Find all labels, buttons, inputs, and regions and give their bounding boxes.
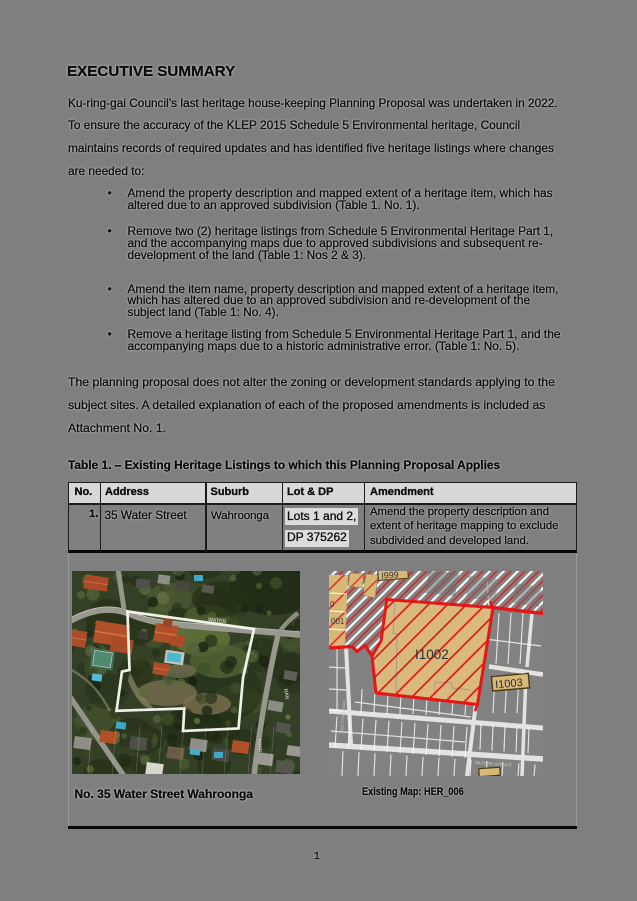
svg-text:001: 001 [331, 617, 345, 626]
svg-text:0: 0 [330, 600, 335, 609]
svg-text:I1003: I1003 [495, 677, 523, 691]
svg-text:I1002: I1002 [415, 647, 449, 662]
svg-text:I999: I999 [381, 571, 399, 581]
